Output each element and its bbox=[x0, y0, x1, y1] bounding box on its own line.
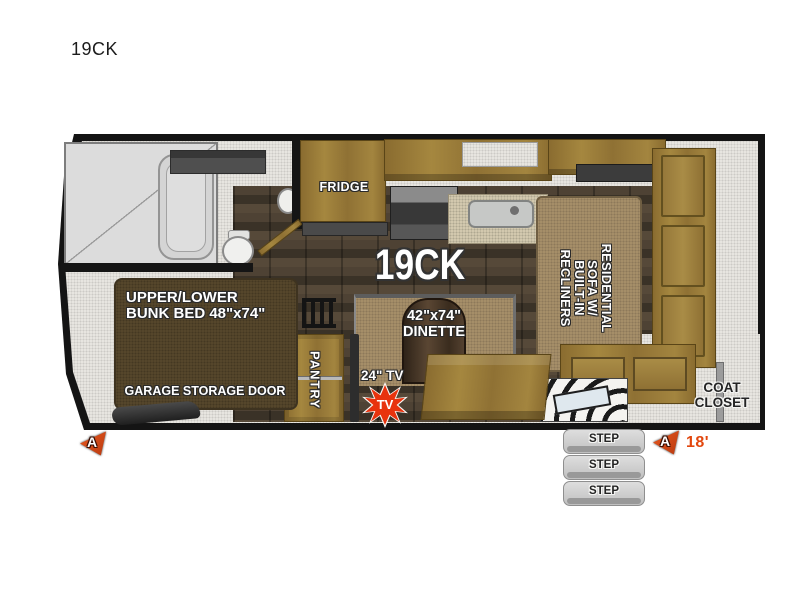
bunk-label-line2: BUNK BED 48"x74" bbox=[126, 306, 265, 322]
step-2-label: STEP bbox=[564, 459, 644, 471]
bathroom-vanity bbox=[170, 150, 266, 174]
wardrobe-door-panel bbox=[661, 155, 705, 217]
marker-letter: A bbox=[87, 434, 97, 450]
pantry-label: PANTRY bbox=[308, 351, 323, 409]
tv-starburst-icon: TV bbox=[362, 382, 408, 428]
bathroom-wall-horizontal bbox=[61, 263, 253, 272]
model-label: 19CK bbox=[340, 244, 500, 287]
dinette-label-line2: DINETTE bbox=[358, 324, 510, 340]
step-3: STEP bbox=[563, 481, 645, 506]
fridge-lower-counter bbox=[302, 222, 388, 236]
sofa-label-line1: RESIDENTIAL bbox=[600, 213, 614, 363]
sofa-label-line2: SOFA W/ bbox=[586, 213, 600, 363]
step-2: STEP bbox=[563, 455, 645, 480]
dinette-bench bbox=[421, 354, 552, 420]
sofa-label: RESIDENTIAL SOFA W/ BUILT-IN RECLINERS bbox=[559, 213, 613, 363]
toilet bbox=[222, 236, 254, 266]
entry-steps: STEP STEP STEP bbox=[563, 428, 647, 506]
wardrobe-door-panel bbox=[661, 225, 705, 287]
bunk-bed-label: UPPER/LOWER BUNK BED 48"x74" bbox=[126, 290, 265, 322]
sofa-label-line3: BUILT-IN bbox=[573, 213, 587, 363]
tv-screen bbox=[350, 334, 359, 422]
bathtub-inner bbox=[166, 162, 206, 252]
model-label-text: 19CK bbox=[375, 244, 465, 287]
coat-label-line1: COAT bbox=[676, 380, 768, 395]
page-title: 19CK bbox=[71, 39, 118, 60]
dinette-label-line1: 42"x74" bbox=[358, 308, 510, 324]
coat-closet-label: COAT CLOSET bbox=[676, 380, 768, 410]
tv-badge-label: TV bbox=[362, 397, 408, 412]
marker-letter: A bbox=[660, 433, 670, 449]
coat-label-line2: CLOSET bbox=[676, 395, 768, 410]
fridge-label: FRIDGE bbox=[302, 180, 386, 194]
kitchen-sink bbox=[468, 200, 534, 228]
garage-storage-label: GARAGE STORAGE DOOR bbox=[114, 384, 296, 398]
wardrobe-cabinet bbox=[652, 148, 716, 368]
step-1-label: STEP bbox=[564, 433, 644, 445]
sofa-label-line4: RECLINERS bbox=[559, 213, 573, 363]
bunk-label-line1: UPPER/LOWER bbox=[126, 290, 265, 306]
overhead-tv bbox=[576, 164, 656, 182]
step-3-label: STEP bbox=[564, 485, 644, 497]
bunk-ladder bbox=[302, 298, 336, 328]
camera-marker-a-left: A bbox=[80, 431, 106, 456]
camera-marker-a-right: A bbox=[653, 430, 679, 455]
trailer-length-label: 18' bbox=[686, 434, 709, 452]
kitchen-window-counter bbox=[462, 142, 538, 167]
floorplan: FRIDGE 19CK UPPER/LOWER BUNK BED 48"x74"… bbox=[58, 134, 765, 430]
tv-size-label: 24" TV bbox=[361, 368, 403, 383]
faucet bbox=[510, 206, 519, 215]
step-1: STEP bbox=[563, 429, 645, 454]
dinette-label: 42"x74" DINETTE bbox=[358, 308, 510, 340]
